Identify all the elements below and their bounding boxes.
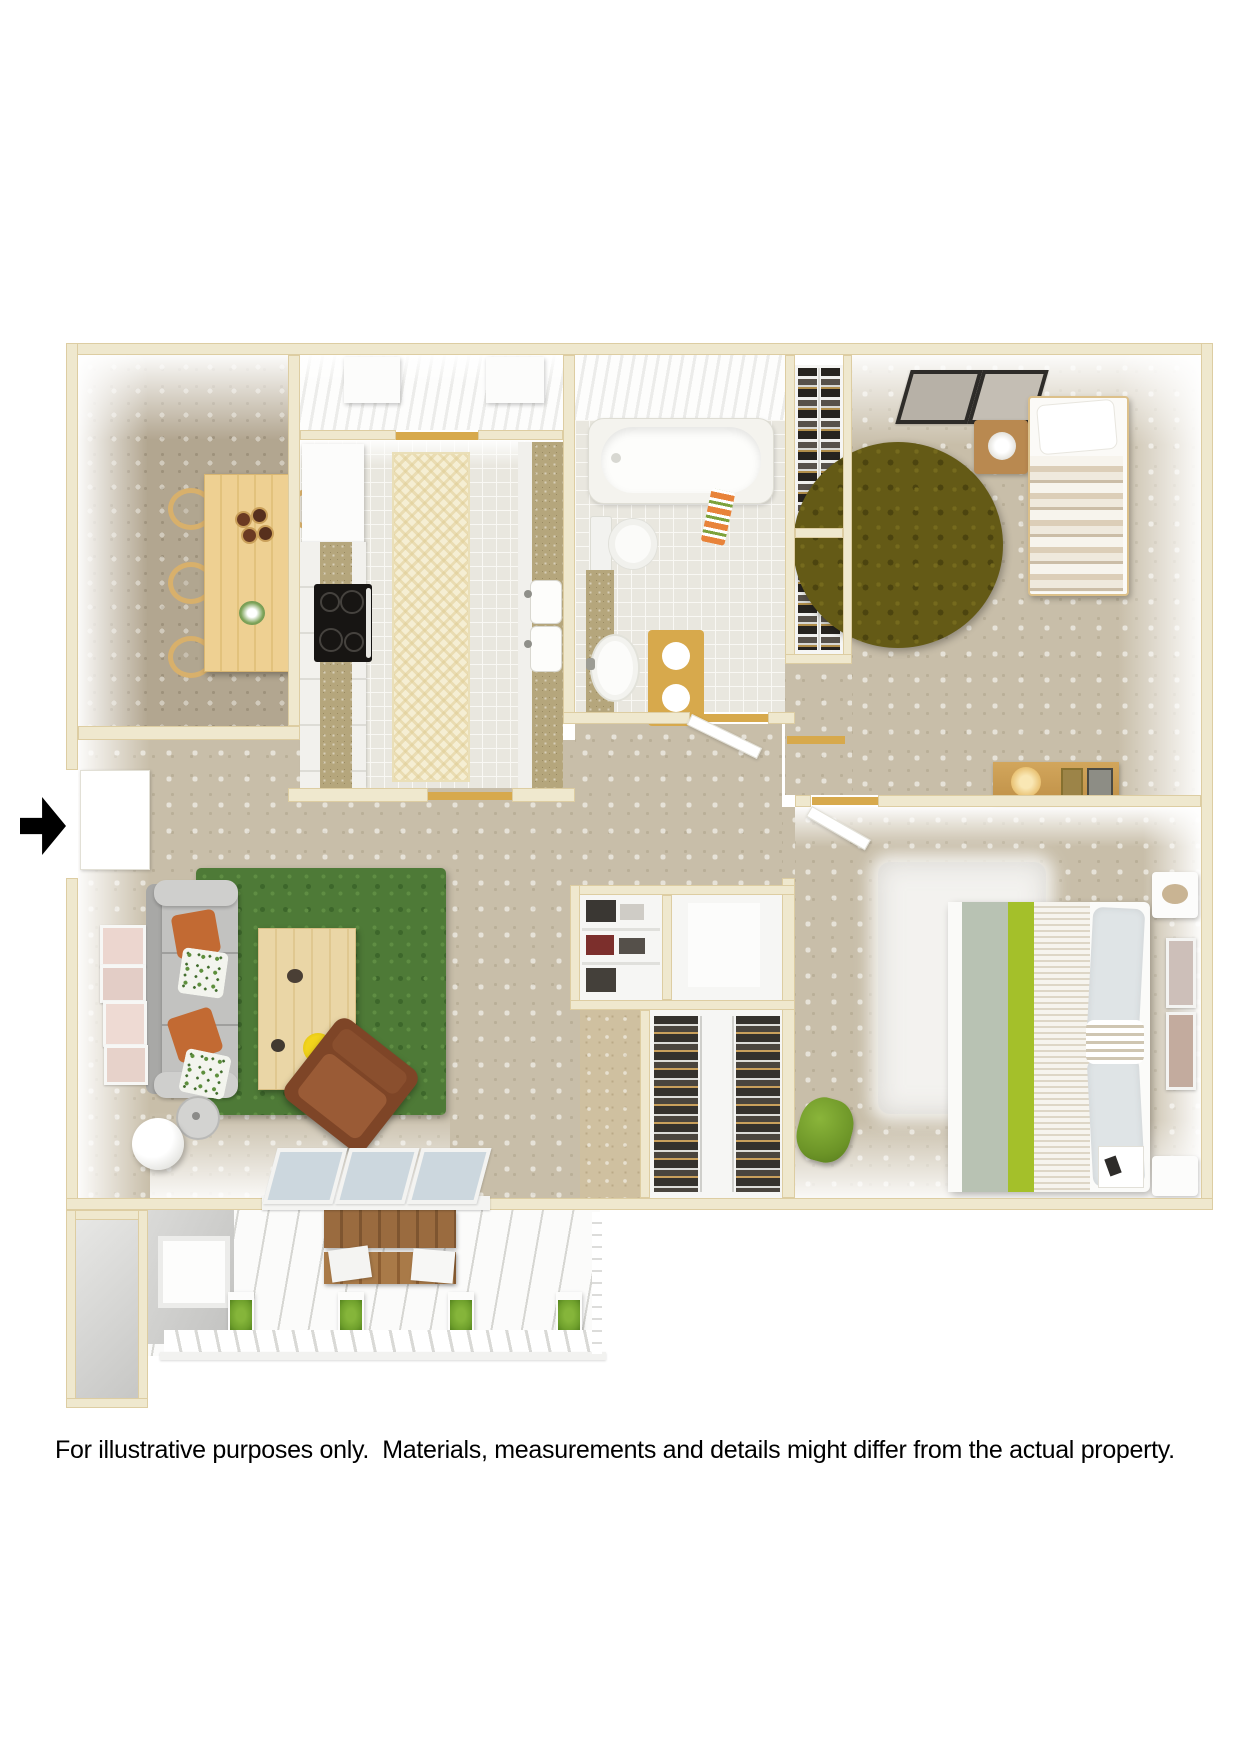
refrigerator	[302, 444, 364, 542]
planter-greenery	[230, 1300, 252, 1330]
bathroom-upper-wall-face	[575, 355, 785, 425]
planter-greenery	[340, 1300, 362, 1330]
patio-storage-wall-left	[66, 1210, 76, 1408]
balcony-railing-edge	[160, 1352, 606, 1360]
bed-pillow	[1036, 399, 1118, 456]
folded-clothes	[620, 904, 644, 920]
dining-bottom-wall	[78, 726, 300, 740]
outer-wall-top	[66, 343, 1213, 355]
dresser-lamp	[1011, 767, 1041, 797]
striped-duvet	[1030, 456, 1123, 592]
hanging-clothes	[654, 1016, 698, 1192]
kitchen-bathroom-wall	[563, 355, 575, 724]
outer-wall-left-lower	[66, 878, 78, 1210]
bathroom-faucet	[586, 658, 595, 670]
outer-wall-right	[1201, 343, 1213, 1210]
stove-burner	[320, 592, 340, 612]
entry-arrow-icon	[20, 797, 66, 855]
bedroom-divider-wall	[878, 795, 1201, 807]
bath-mat-circle	[662, 684, 690, 712]
walkin-closet-wall-left	[640, 1010, 650, 1198]
laundry-bottom-wall-right	[478, 430, 563, 440]
table-decor	[287, 969, 303, 983]
disclaimer-caption: For illustrative purposes only. Material…	[55, 1436, 1175, 1465]
laundry-bottom-wall-left	[300, 430, 396, 440]
bedroom2-passage-floor	[785, 664, 852, 795]
master-nightstand	[1152, 1156, 1198, 1196]
oven-handle	[366, 588, 371, 658]
table-decor	[271, 1039, 285, 1052]
closet-rod	[700, 1016, 702, 1192]
kitchen-bottom-wall-right	[512, 788, 575, 802]
laundry-door-threshold	[396, 432, 478, 440]
kitchen-faucet	[524, 640, 532, 648]
wine-bottle	[251, 507, 268, 524]
sofa	[146, 884, 238, 1094]
wall-art-frame	[1166, 1012, 1196, 1090]
planter-greenery	[450, 1300, 472, 1330]
bedroom2-door-threshold	[787, 736, 845, 744]
folded-clothes	[619, 938, 645, 954]
floor-lamp	[132, 1118, 184, 1170]
bed-pillow	[1087, 907, 1146, 1038]
bed-fold-edge	[948, 902, 963, 1192]
bathtub-drain	[611, 453, 621, 463]
linen-shelf-line	[582, 962, 660, 965]
stove-burner	[319, 628, 343, 652]
side-table	[176, 1096, 220, 1140]
bathroom-bottom-wall-right	[768, 712, 795, 724]
bathtub-basin	[601, 427, 761, 493]
green-accent-stripe	[1008, 902, 1034, 1192]
patio-storage-wall-bottom	[66, 1398, 148, 1408]
shoe-closet-divider	[795, 528, 843, 538]
outer-wall-left-upper	[66, 343, 78, 770]
bedroom2-bed	[1028, 396, 1129, 596]
water-heater-unit	[688, 903, 760, 987]
bed-tray	[1098, 1146, 1144, 1188]
leaf-print-pillow	[177, 947, 229, 999]
folded-clothes	[586, 900, 616, 922]
dining-wall-face-left	[78, 355, 148, 726]
shoe-closet-bottom-wall	[785, 654, 852, 664]
dining-table	[204, 474, 292, 672]
folded-clothes	[586, 935, 614, 955]
patio-storage-interior	[76, 1220, 138, 1398]
patio-table	[324, 1210, 456, 1248]
vanity-nook-floor	[575, 724, 782, 742]
mid-closet-wall-left	[570, 885, 580, 1010]
master-door-threshold	[812, 797, 878, 805]
mid-closet-wall-bottom	[570, 1000, 795, 1010]
entry-door	[80, 770, 150, 870]
wall-art-frame	[100, 965, 146, 1003]
kitchen-faucet	[524, 590, 532, 598]
wall-art-frame	[104, 1045, 148, 1085]
toilet-bowl	[608, 518, 658, 570]
bedroom2-wall-face-right	[1118, 355, 1201, 795]
wine-bottle	[241, 527, 258, 544]
sage-blanket	[962, 902, 1008, 1192]
bath-mat-circle	[662, 642, 690, 670]
leaf-print-pillow	[178, 1048, 232, 1101]
stove-burner	[344, 632, 364, 652]
floor-plan-page: For illustrative purposes only. Material…	[0, 0, 1240, 1753]
closet-rod	[732, 1016, 734, 1192]
master-bed	[948, 902, 1150, 1192]
kitchen-sink-basin	[530, 580, 562, 624]
nightstand-decor	[1162, 884, 1188, 904]
planter-greenery	[558, 1300, 580, 1330]
kitchen-door-threshold	[428, 792, 512, 800]
kitchen-runner-rug	[392, 452, 470, 782]
stove-cooktop	[314, 584, 372, 662]
striped-bolster	[1086, 1020, 1144, 1064]
kitchen-sink-basin	[530, 626, 562, 672]
patio-window	[158, 1236, 230, 1308]
hall-floor-patch	[782, 807, 795, 878]
dining-kitchen-wall	[288, 355, 300, 726]
bench-cushion	[328, 1245, 372, 1282]
hanging-clothes	[736, 1016, 780, 1192]
washer	[344, 357, 400, 403]
master-nightstand	[1152, 872, 1198, 918]
mid-closet-wall-top	[570, 885, 795, 895]
bathroom-sink	[590, 634, 640, 702]
table-plant	[239, 601, 265, 625]
table-lamp	[988, 432, 1016, 460]
phone	[1104, 1155, 1121, 1176]
striped-duvet	[1034, 902, 1090, 1192]
wall-art-frame	[1166, 938, 1196, 1008]
mid-closet-divider	[662, 895, 672, 1000]
bathroom-closet-wall	[785, 355, 795, 664]
patio-storage-wall-top	[66, 1210, 148, 1220]
clock	[192, 1112, 200, 1120]
stove-burner	[340, 590, 364, 614]
wall-art-frame	[103, 1001, 147, 1047]
kitchen-bottom-wall-left	[288, 788, 428, 802]
bathtub	[588, 418, 774, 504]
master-left-wall	[782, 878, 795, 1198]
patio-storage-wall-right	[138, 1210, 148, 1408]
laundry-nook-floor	[580, 1010, 640, 1198]
folded-clothes	[586, 968, 616, 992]
bench-cushion	[411, 1248, 456, 1284]
sofa-armrest	[154, 880, 238, 906]
wine-bottle	[235, 511, 252, 528]
bedroom2-round-rug	[793, 442, 1003, 648]
kitchen-left-countertop	[320, 542, 352, 788]
patio-side-wall	[148, 1210, 234, 1344]
closet-bedroom2-wall	[843, 355, 852, 664]
outer-wall-bottom	[66, 1198, 1213, 1210]
bedroom-divider-wall-stub	[795, 795, 811, 807]
dryer	[486, 357, 544, 403]
linen-shelf-line	[582, 928, 660, 931]
bathroom-bottom-wall-left	[563, 712, 690, 724]
balcony-railing-side	[592, 1212, 602, 1354]
wall-art-frame	[100, 925, 146, 967]
bedroom2-nightstand	[974, 420, 1028, 474]
wine-bottle	[257, 525, 274, 542]
